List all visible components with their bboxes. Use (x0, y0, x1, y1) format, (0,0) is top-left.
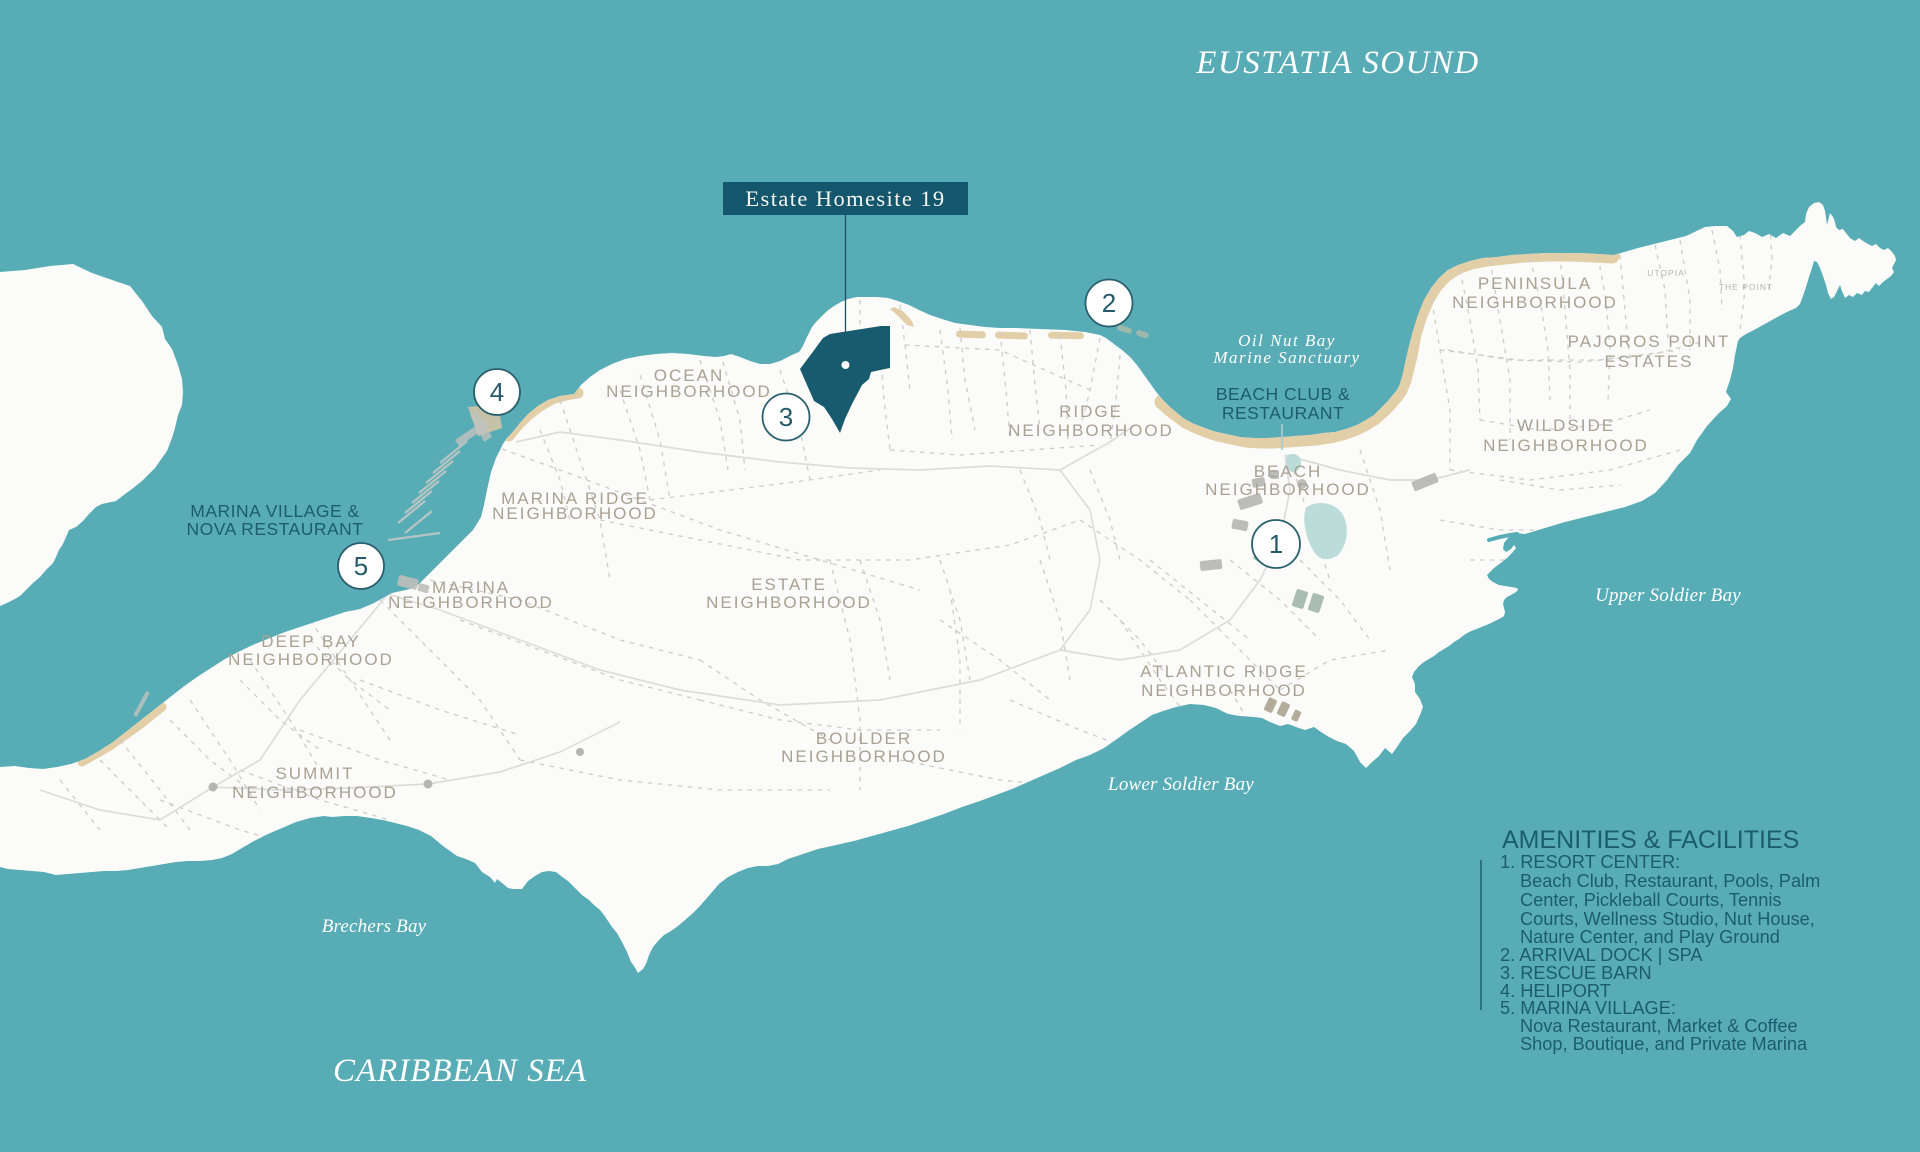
svg-text:2: 2 (1102, 288, 1116, 318)
svg-text:NEIGHBORHOOD: NEIGHBORHOOD (781, 747, 947, 766)
svg-text:NEIGHBORHOOD: NEIGHBORHOOD (388, 593, 554, 612)
svg-text:Center, Pickleball Courts, Ten: Center, Pickleball Courts, Tennis (1520, 890, 1782, 910)
svg-text:NEIGHBORHOOD: NEIGHBORHOOD (1483, 436, 1649, 455)
svg-text:2. ARRIVAL DOCK | SPA: 2. ARRIVAL DOCK | SPA (1500, 945, 1703, 965)
svg-text:NEIGHBORHOOD: NEIGHBORHOOD (232, 783, 398, 802)
svg-text:UTOPIA: UTOPIA (1647, 268, 1685, 278)
svg-text:3: 3 (779, 402, 793, 432)
svg-text:Beach Club, Restaurant, Pools,: Beach Club, Restaurant, Pools, Palm (1520, 871, 1820, 891)
svg-text:5. MARINA VILLAGE:: 5. MARINA VILLAGE: (1500, 998, 1676, 1018)
svg-text:1. RESORT CENTER:: 1. RESORT CENTER: (1500, 852, 1680, 872)
svg-text:Nature Center, and Play Ground: Nature Center, and Play Ground (1520, 927, 1780, 947)
svg-text:MARINA VILLAGE &: MARINA VILLAGE & (190, 501, 359, 521)
svg-text:4: 4 (490, 377, 504, 407)
svg-text:WILDSIDE: WILDSIDE (1517, 416, 1615, 435)
svg-text:CARIBBEAN SEA: CARIBBEAN SEA (333, 1053, 587, 1089)
svg-text:BOULDER: BOULDER (816, 729, 912, 748)
svg-text:Estate Homesite 19: Estate Homesite 19 (745, 186, 945, 211)
svg-text:EUSTATIA SOUND: EUSTATIA SOUND (1195, 45, 1480, 81)
svg-text:Nova Restaurant, Market & Coff: Nova Restaurant, Market & Coffee (1520, 1016, 1798, 1036)
svg-text:ATLANTIC RIDGE: ATLANTIC RIDGE (1140, 662, 1307, 681)
svg-text:RESTAURANT: RESTAURANT (1222, 403, 1344, 423)
svg-text:Shop, Boutique, and Private Ma: Shop, Boutique, and Private Marina (1520, 1034, 1808, 1054)
svg-text:Brechers Bay: Brechers Bay (322, 916, 427, 937)
svg-text:DEEP BAY: DEEP BAY (261, 632, 360, 651)
svg-text:Marine Sanctuary: Marine Sanctuary (1212, 348, 1360, 367)
svg-text:NEIGHBORHOOD: NEIGHBORHOOD (706, 593, 872, 612)
svg-text:NEIGHBORHOOD: NEIGHBORHOOD (492, 504, 658, 523)
svg-text:NEIGHBORHOOD: NEIGHBORHOOD (1141, 681, 1307, 700)
svg-text:Lower Soldier Bay: Lower Soldier Bay (1107, 774, 1254, 795)
svg-text:PENINSULA: PENINSULA (1478, 274, 1592, 293)
svg-text:AMENITIES & FACILITIES: AMENITIES & FACILITIES (1502, 826, 1799, 854)
svg-text:PAJOROS POINT: PAJOROS POINT (1568, 332, 1731, 351)
svg-text:NEIGHBORHOOD: NEIGHBORHOOD (1008, 421, 1174, 440)
svg-text:ESTATES: ESTATES (1605, 352, 1694, 371)
svg-text:NEIGHBORHOOD: NEIGHBORHOOD (1205, 480, 1371, 499)
svg-text:BEACH: BEACH (1254, 462, 1323, 481)
svg-text:1: 1 (1269, 529, 1283, 559)
svg-text:BEACH CLUB &: BEACH CLUB & (1216, 384, 1350, 404)
svg-text:NEIGHBORHOOD: NEIGHBORHOOD (1452, 293, 1618, 312)
svg-text:NEIGHBORHOOD: NEIGHBORHOOD (606, 382, 772, 401)
svg-text:NEIGHBORHOOD: NEIGHBORHOOD (228, 650, 394, 669)
svg-text:5: 5 (354, 551, 368, 581)
svg-text:Upper Soldier Bay: Upper Soldier Bay (1595, 585, 1741, 606)
svg-text:Courts, Wellness Studio, Nut H: Courts, Wellness Studio, Nut House, (1520, 909, 1815, 929)
svg-text:SUMMIT: SUMMIT (275, 764, 354, 783)
svg-text:NOVA RESTAURANT: NOVA RESTAURANT (186, 519, 363, 539)
svg-text:ESTATE: ESTATE (751, 575, 827, 594)
svg-text:3. RESCUE BARN: 3. RESCUE BARN (1500, 963, 1652, 983)
svg-text:THE POINT: THE POINT (1719, 282, 1773, 292)
svg-text:RIDGE: RIDGE (1059, 402, 1123, 421)
